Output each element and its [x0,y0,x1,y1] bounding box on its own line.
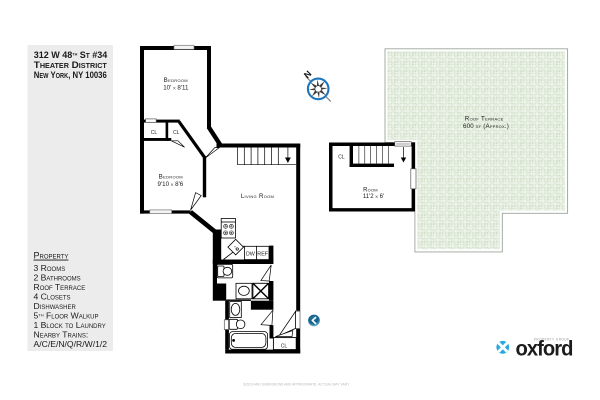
svg-text:Room: Room [363,187,378,193]
svg-text:CL: CL [338,155,345,161]
svg-text:10' x 8'11: 10' x 8'11 [163,85,189,92]
svg-text:CL: CL [281,344,288,350]
svg-text:CL: CL [173,130,180,136]
svg-text:Bedroom: Bedroom [164,77,188,84]
svg-text:DW: DW [246,252,256,258]
svg-text:Roof Terrace: Roof Terrace [34,282,86,292]
svg-text:CL: CL [151,130,158,136]
svg-text:11'2 x 6': 11'2 x 6' [363,194,384,200]
svg-text:4 Closets: 4 Closets [34,292,71,302]
svg-text:Bedroom: Bedroom [159,173,183,180]
svg-text:Living Room: Living Room [241,193,274,200]
svg-text:Roof Terrace: Roof Terrace [465,116,504,123]
svg-text:PROPERTY GROUP: PROPERTY GROUP [534,338,570,342]
svg-text:9'10 x 8'6: 9'10 x 8'6 [158,181,184,188]
svg-text:Dishwasher: Dishwasher [34,301,77,311]
svg-text:2 Bathrooms: 2 Bathrooms [34,273,81,283]
svg-text:Property: Property [34,251,69,261]
svg-text:New York, NY 10036: New York, NY 10036 [34,70,107,81]
svg-text:600 sf (Approx.): 600 sf (Approx.) [463,123,509,130]
svg-text:3 Rooms: 3 Rooms [34,263,66,273]
svg-text:SIZES AND DIMENSIONS ARE APPRO: SIZES AND DIMENSIONS ARE APPROXIMATE. AC… [243,382,350,386]
svg-text:5th Floor Walkup: 5th Floor Walkup [34,311,99,321]
svg-text:A/C/E/N/Q/R/W/1/2: A/C/E/N/Q/R/W/1/2 [34,339,108,349]
svg-text:REF: REF [257,252,268,258]
